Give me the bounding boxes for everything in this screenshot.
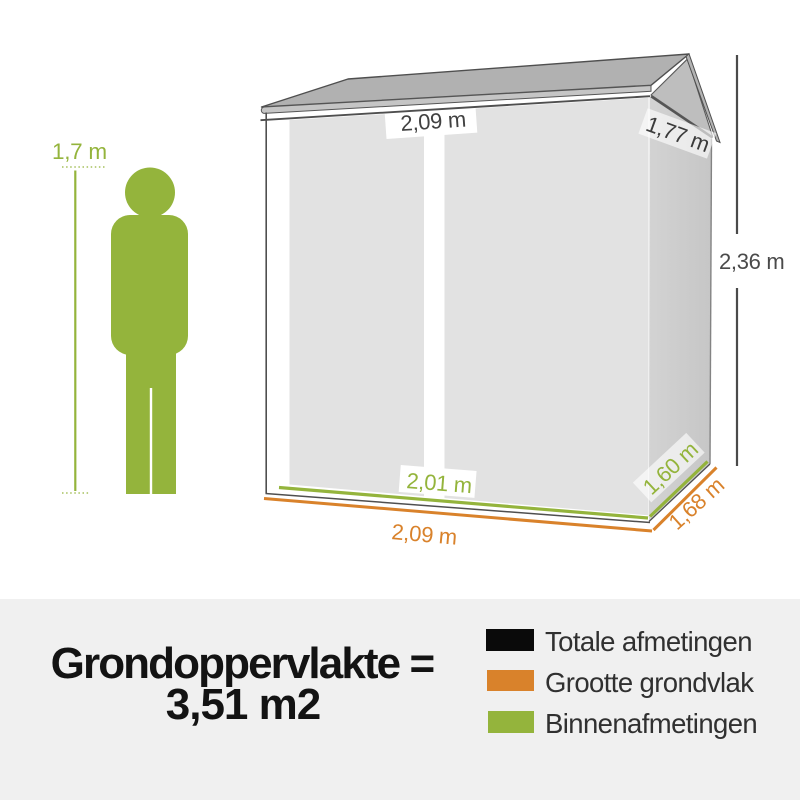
svg-text:Totale afmetingen: Totale afmetingen	[545, 626, 752, 657]
svg-text:2,09 m: 2,09 m	[400, 106, 467, 136]
svg-text:2,36 m: 2,36 m	[719, 249, 784, 274]
svg-text:1,7 m: 1,7 m	[52, 139, 107, 164]
svg-text:Grootte grondvlak: Grootte grondvlak	[545, 667, 754, 698]
svg-text:2,01 m: 2,01 m	[406, 468, 473, 498]
svg-text:3,51 m2: 3,51 m2	[166, 680, 320, 729]
svg-text:Binnenafmetingen: Binnenafmetingen	[545, 708, 757, 739]
